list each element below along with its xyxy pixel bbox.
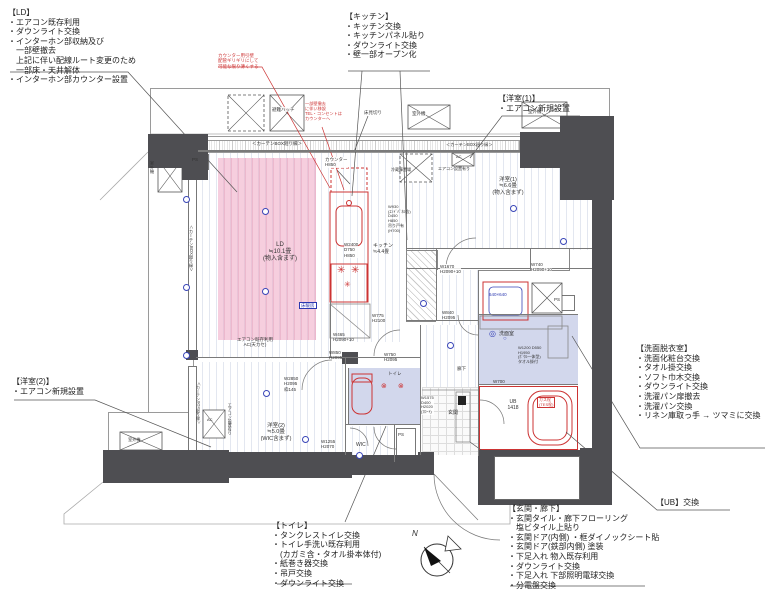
annotation-line: ・エアコン新規設置 [12, 387, 122, 397]
annotation-line: (カガミ含・タオル掛本体付) [272, 550, 422, 560]
floor-plan-page: 避難ハッチ室外機室外機床見切り＜カーテンBOX廻り縁＞＜カーテンBOX廻り縁＞＜… [0, 0, 765, 590]
label-outdoor-unit-left: 室外機 [149, 161, 154, 174]
annotation-washroom-title: 【洗面脱衣室】 [636, 344, 764, 354]
label-floor-edge: 床見切り [364, 110, 382, 115]
electrical-marker [183, 284, 190, 291]
label-w840: W840 H2095 [442, 310, 455, 321]
label-w930: W930 (ｴﾝﾄﾞﾊﾟﾈﾙ含) D450 H850 吊り戸有 (H700) [388, 205, 411, 233]
annotation-line: ・玄関タイル・廊下フローリング [508, 514, 728, 524]
annotation-line: ・洗濯パン交換 [636, 402, 764, 412]
annotation-bedroom2-title: 【洋室(2)】 [12, 377, 122, 387]
label-yo1-room: 洋室(1) ≒6.6畳 (物入含まず) [482, 177, 534, 196]
meter-box [494, 456, 580, 500]
annotation-ld: 【LD】 ・エアコン既存利用・ダウンライト交換・インターホン部収納及び 一部壁撤… [8, 8, 178, 85]
labels-layer: 避難ハッチ室外機室外機床見切り＜カーテンBOX廻り縁＞＜カーテンBOX廻り縁＞＜… [0, 0, 765, 590]
label-vanity: W1200 D550 H1950 (ﾎﾞｳﾙ一体型) タオル掛付 [518, 346, 541, 365]
annotation-toilet-items: ・タンクレストイレ交換・トイレ手洗い既存利用 (カガミ含・タオル掛本体付)・紙巻… [272, 531, 422, 589]
electrical-marker [356, 452, 363, 459]
label-curtain-box-top: ＜カーテンBOX廻り縁＞ [252, 141, 302, 146]
label-w740: W740 H2090+10 [531, 262, 552, 273]
electrical-marker [447, 342, 454, 349]
label-gas-plug: ガス栓 (TES栓) [537, 397, 555, 408]
annotation-ld-items: ・エアコン既存利用・ダウンライト交換・インターホン部収納及び 一部壁撤去 上記に… [8, 18, 178, 85]
label-ps-topleft: PS [192, 157, 198, 162]
label-curtain-box-left2: ＜カーテンBOX廻り縁＞ [196, 382, 200, 424]
annotation-line: ・ダウンライト交換 [8, 27, 178, 37]
electrical-marker [510, 205, 517, 212]
annotation-line: ・エアコン新規設置 [498, 104, 598, 114]
label-w1255: W1255 H2070 [321, 439, 335, 450]
label-rouka: 廊下 [457, 366, 466, 371]
annotation-bedroom1: 【洋室(1)】 ・エアコン新規設置 [498, 94, 598, 113]
annotation-line: ・キッチン交換 [345, 22, 465, 32]
electrical-marker [302, 436, 309, 443]
electrical-marker [420, 300, 427, 307]
annotation-line: ・洗濯パン扉撤去 [636, 392, 764, 402]
annotation-line: ・壁一部オープン化 [345, 50, 465, 60]
label-outdoor-unit-bottom: 室外機 [128, 438, 141, 443]
label-ac-yo1: エアコン設置有り [438, 167, 470, 172]
fixture-symbol: ✳ [351, 266, 359, 276]
electrical-marker [263, 390, 270, 397]
annotation-toilet: 【トイレ】 ・タンクレストイレ交換・トイレ手洗い既存利用 (カガミ含・タオル掛本… [272, 521, 422, 588]
label-wic: WIC [356, 443, 366, 449]
label-kitchen-room: キッチン ≒4.4畳 [373, 244, 393, 256]
label-shoe-cabinet: W1575 D400 H2020 (ﾌﾛｰﾄ) [421, 396, 434, 415]
electrical-marker [183, 352, 190, 359]
label-ld-room: LD ≒10.1畳 (物入含まず) [248, 242, 312, 263]
label-outdoor-unit-top: 室外機 [412, 111, 426, 116]
annotation-line: ・紙巻き器交換 [272, 559, 422, 569]
note-tel-outlet: 一部壁撤去 に伴い移設 TEL・コンセントは カウンターへ [305, 102, 342, 122]
electrical-marker [262, 288, 269, 295]
annotation-toilet-title: 【トイレ】 [272, 521, 422, 531]
annotation-line: ・下足入れ 物入既存利用 [508, 552, 728, 562]
label-counter: カウンター H850 [325, 157, 348, 168]
fixture-symbol: ✳ [337, 266, 345, 276]
label-ac-yo2-box: AC [207, 418, 213, 423]
annotation-genkan-title: 【玄関・廊下】 [508, 504, 728, 514]
annotation-genkan-items: ・玄関タイル・廊下フローリング 塩ビタイル上貼り・玄関ドア(内側) ・框ダイノッ… [508, 514, 728, 590]
label-toilet-room: トイレ [388, 371, 402, 376]
electrical-marker [560, 238, 567, 245]
annotation-line: ・タオル掛交換 [636, 363, 764, 373]
annotation-line: ・インターホン部収納及び [8, 37, 178, 47]
label-genkan-room: 玄関 [448, 411, 458, 417]
annotation-line: ・ダウンライト交換 [272, 579, 422, 589]
annotation-line: ・ダウンライト交換 [345, 41, 465, 51]
label-floor-heating: 床暖房 [299, 302, 317, 309]
fixture-symbol: ✳ [344, 281, 351, 289]
label-w465: W465 H2090+10 [333, 332, 354, 343]
annotation-kitchen-items: ・キッチン交換・キッチンパネル貼り・ダウンライト交換・壁一部オープン化 [345, 22, 465, 60]
label-w750: W750 H2095 [384, 352, 397, 363]
annotation-line: ・ソフト巾木交換 [636, 373, 764, 383]
annotation-line: ・下足入れ 下部照明電球交換 [508, 571, 728, 581]
annotation-line: ・タンクレストイレ交換 [272, 531, 422, 541]
label-w700: W700 [493, 379, 505, 384]
annotation-line: 一部床・天井解体 [8, 66, 178, 76]
annotation-line: ・ダウンライト交換 [636, 382, 764, 392]
annotation-bedroom2-items: ・エアコン新規設置 [12, 387, 122, 397]
note-counter-wall: カウンター用引壁 配管ギリギリにして 可能な限り薄くする [218, 53, 259, 69]
annotation-line: ・キッチンパネル貼り [345, 31, 465, 41]
label-w850: W850 H2095 [329, 350, 342, 361]
annotation-line: ・分電盤交換 [508, 581, 728, 590]
fixture-symbol: ⊗ [381, 383, 387, 390]
annotation-line: 塩ビタイル上貼り [508, 523, 728, 533]
annotation-genkan: 【玄関・廊下】 ・玄関タイル・廊下フローリング 塩ビタイル上貼り・玄関ドア(内側… [508, 504, 728, 590]
annotation-kitchen: 【キッチン】 ・キッチン交換・キッチンパネル貼り・ダウンライト交換・壁一部オープ… [345, 12, 465, 60]
annotation-bedroom1-items: ・エアコン新規設置 [498, 104, 598, 114]
label-hinan-hatch: 避難ハッチ [272, 107, 295, 112]
fixture-symbol: ⊗ [398, 383, 404, 390]
annotation-line: ・インターホン部カウンター設置 [8, 75, 178, 85]
annotation-line: 上記に伴い配線ルート変更のため [8, 56, 178, 66]
electrical-marker [262, 208, 269, 215]
annotation-bedroom2: 【洋室(2)】 ・エアコン新規設置 [12, 377, 122, 396]
fixture-symbol: ◎ [489, 330, 496, 338]
annotation-line: ・リネン庫取っ手 → ツマミに交換 [636, 411, 764, 421]
annotation-ld-title: 【LD】 [8, 8, 178, 18]
label-curtain-box-top2: ＜カーテンBOX廻り縁＞ [446, 143, 493, 148]
label-ub-size: UB 1418 [500, 400, 526, 412]
annotation-washroom-items: ・洗面化粧台交換・タオル掛交換・ソフト巾木交換・ダウンライト交換・洗濯パン扉撤去… [636, 354, 764, 421]
fixture-symbol: ○ [503, 336, 507, 342]
annotation-washroom: 【洗面脱衣室】 ・洗面化粧台交換・タオル掛交換・ソフト巾木交換・ダウンライト交換… [636, 344, 764, 421]
label-ps-wic: PS [398, 432, 404, 437]
label-pan-size: 640×640 [489, 292, 507, 297]
label-w775: W775 H2100 [372, 313, 385, 324]
label-fridge: 冷蔵庫置場 [391, 168, 411, 173]
label-ac-yo1-box: AC [456, 155, 462, 160]
label-ac-yo2: エアコン設置有り [227, 403, 232, 435]
label-w2850: W2850 H2095 枠145 [284, 376, 298, 392]
annotation-line: ・洗面化粧台交換 [636, 354, 764, 364]
label-curtain-box-left: ＜カーテンBOX廻り縁＞ [188, 225, 193, 272]
label-w1670: W1670 H2090+10 [440, 264, 461, 275]
electrical-marker [183, 196, 190, 203]
label-aircon-ld: エアコン既存利用 AC(天カセ) [230, 337, 280, 348]
annotation-kitchen-title: 【キッチン】 [345, 12, 465, 22]
annotation-line: ・ダウンライト交換 [508, 562, 728, 572]
annotation-line: ・玄関ドア(鉄部内側) 塗装 [508, 542, 728, 552]
annotation-bedroom1-title: 【洋室(1)】 [498, 94, 598, 104]
annotation-line: ・吊戸交換 [272, 569, 422, 579]
annotation-line: ・玄関ドア(内側) ・框ダイノックシート貼 [508, 533, 728, 543]
annotation-line: ・トイレ手洗い既存利用 [272, 540, 422, 550]
label-ps-right: PS [554, 297, 560, 302]
label-kitchen-counter-size: W2400 D750 H850 [344, 242, 358, 258]
annotation-line: 一部壁撤去 [8, 46, 178, 56]
label-yo2-room: 洋室(2) ≒5.0畳 (WIC含まず) [246, 423, 306, 442]
annotation-line: ・エアコン既存利用 [8, 18, 178, 28]
